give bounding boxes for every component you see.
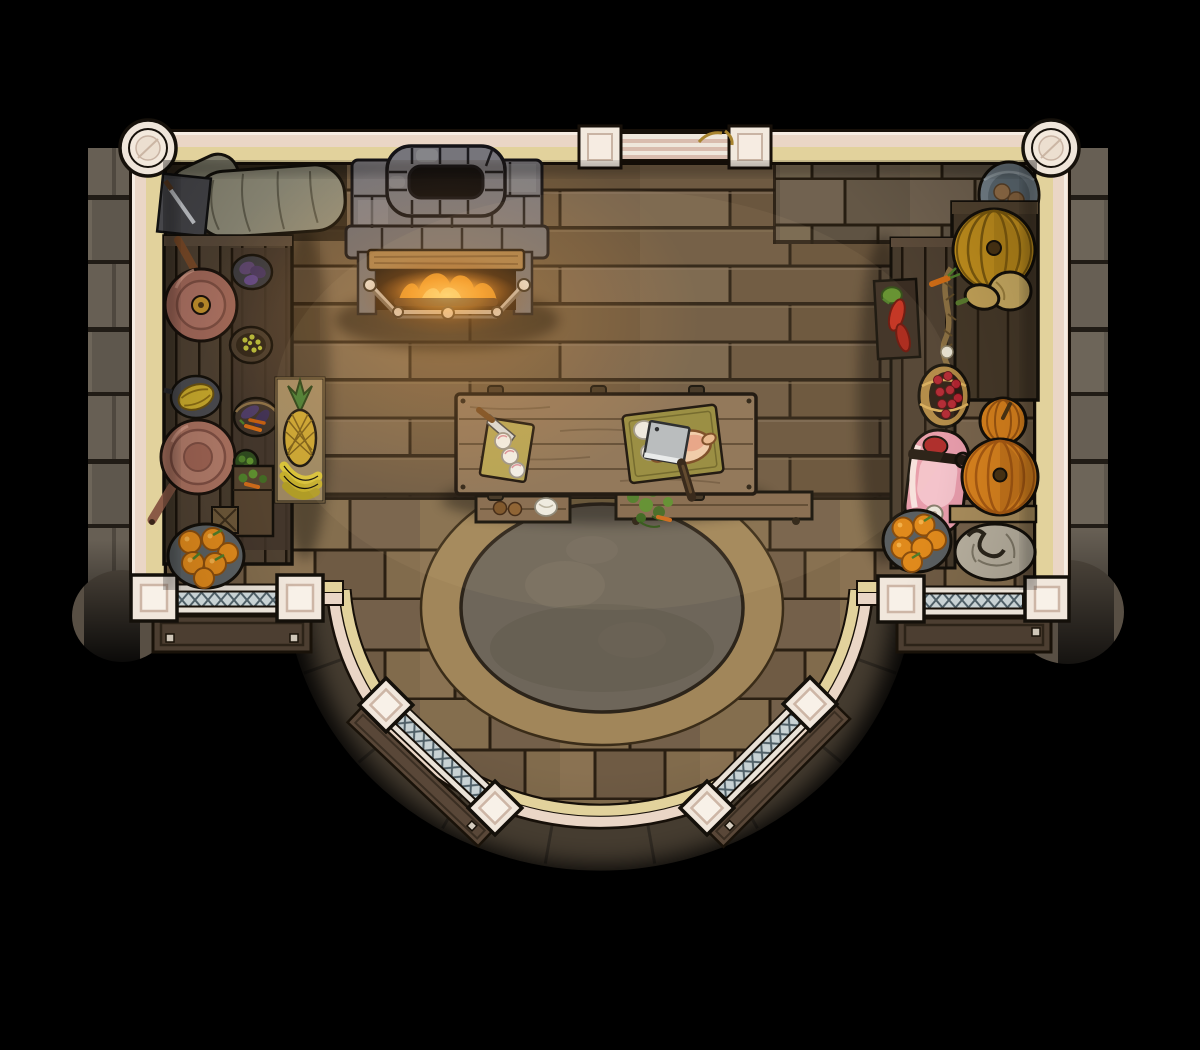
square-pillar-1 <box>131 575 177 621</box>
slate-board <box>157 174 211 237</box>
map-canvas[interactable] <box>0 0 1200 1050</box>
olive-basket <box>230 327 272 363</box>
round-pillar-topright <box>1023 120 1079 176</box>
battle-map[interactable] <box>0 0 1200 1050</box>
produce-crate <box>276 378 324 502</box>
pumpkin-small <box>980 398 1026 444</box>
orange-bowl-right <box>883 510 951 572</box>
round-pillar-topleft <box>120 120 176 176</box>
kitchen-table-area <box>441 386 812 527</box>
railing-left <box>172 585 282 614</box>
chimney <box>387 146 505 216</box>
pepper-box <box>874 279 920 359</box>
square-pillar-2 <box>277 575 323 621</box>
fireplace <box>335 146 559 350</box>
veg-basket <box>234 398 278 436</box>
pumpkin-large <box>962 439 1038 515</box>
orange-bowl-left <box>168 524 244 588</box>
eggplant-bowl <box>232 255 272 289</box>
balustrade-window <box>579 126 771 168</box>
left-counter-area <box>149 148 347 588</box>
square-pillar-3 <box>878 576 924 622</box>
garlic-sack <box>955 524 1035 580</box>
railing-right <box>920 587 1026 616</box>
berry-basket <box>919 365 969 427</box>
square-pillar-4 <box>1025 577 1069 621</box>
mantel <box>368 250 524 270</box>
